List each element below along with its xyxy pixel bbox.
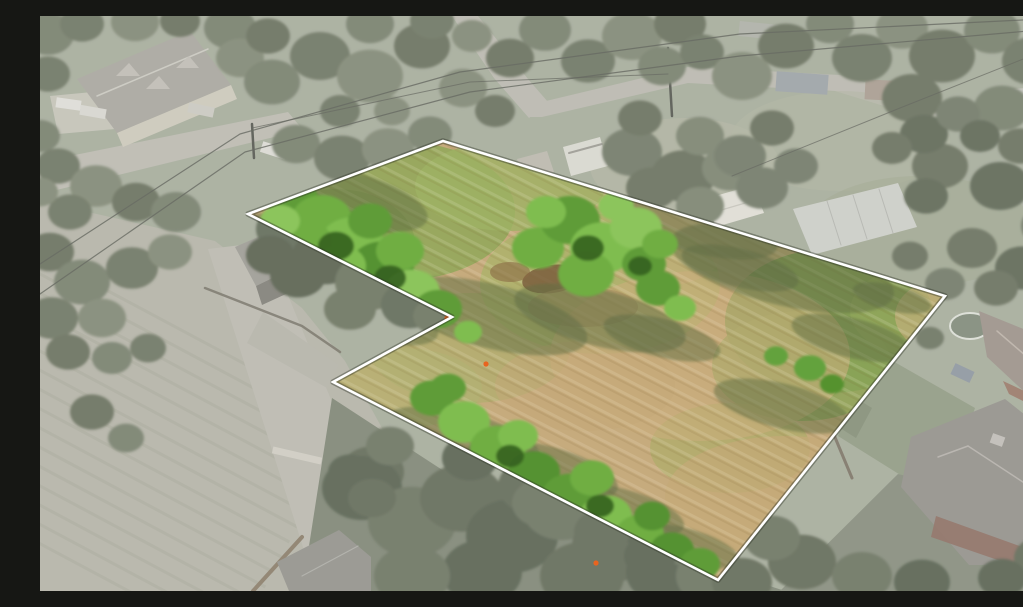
survey-flag (483, 361, 488, 366)
tree-canopy-bright (430, 374, 466, 403)
tree-canopy-bright (642, 230, 678, 259)
tree-canopy-bright (794, 355, 826, 381)
aerial-photo (40, 16, 1023, 591)
tree-canopy-bright (664, 295, 696, 321)
tree-canopy-bright (526, 196, 566, 228)
tree-canopy-bright (570, 460, 614, 495)
tree-canopy-bright (820, 374, 844, 393)
tree-canopy-bright (348, 203, 392, 238)
tree-canopy-bright (634, 502, 670, 531)
tree-canopy-dark-accent (628, 256, 652, 275)
tree-canopy-bright (764, 346, 788, 365)
tree-canopy-bright (454, 321, 482, 343)
aerial-photo-frame (40, 16, 1023, 591)
tree-canopy-dark-accent (496, 445, 524, 467)
tree-canopy-bright (376, 232, 424, 270)
survey-flag (593, 560, 598, 565)
tree-canopy-dark-accent (572, 235, 604, 261)
